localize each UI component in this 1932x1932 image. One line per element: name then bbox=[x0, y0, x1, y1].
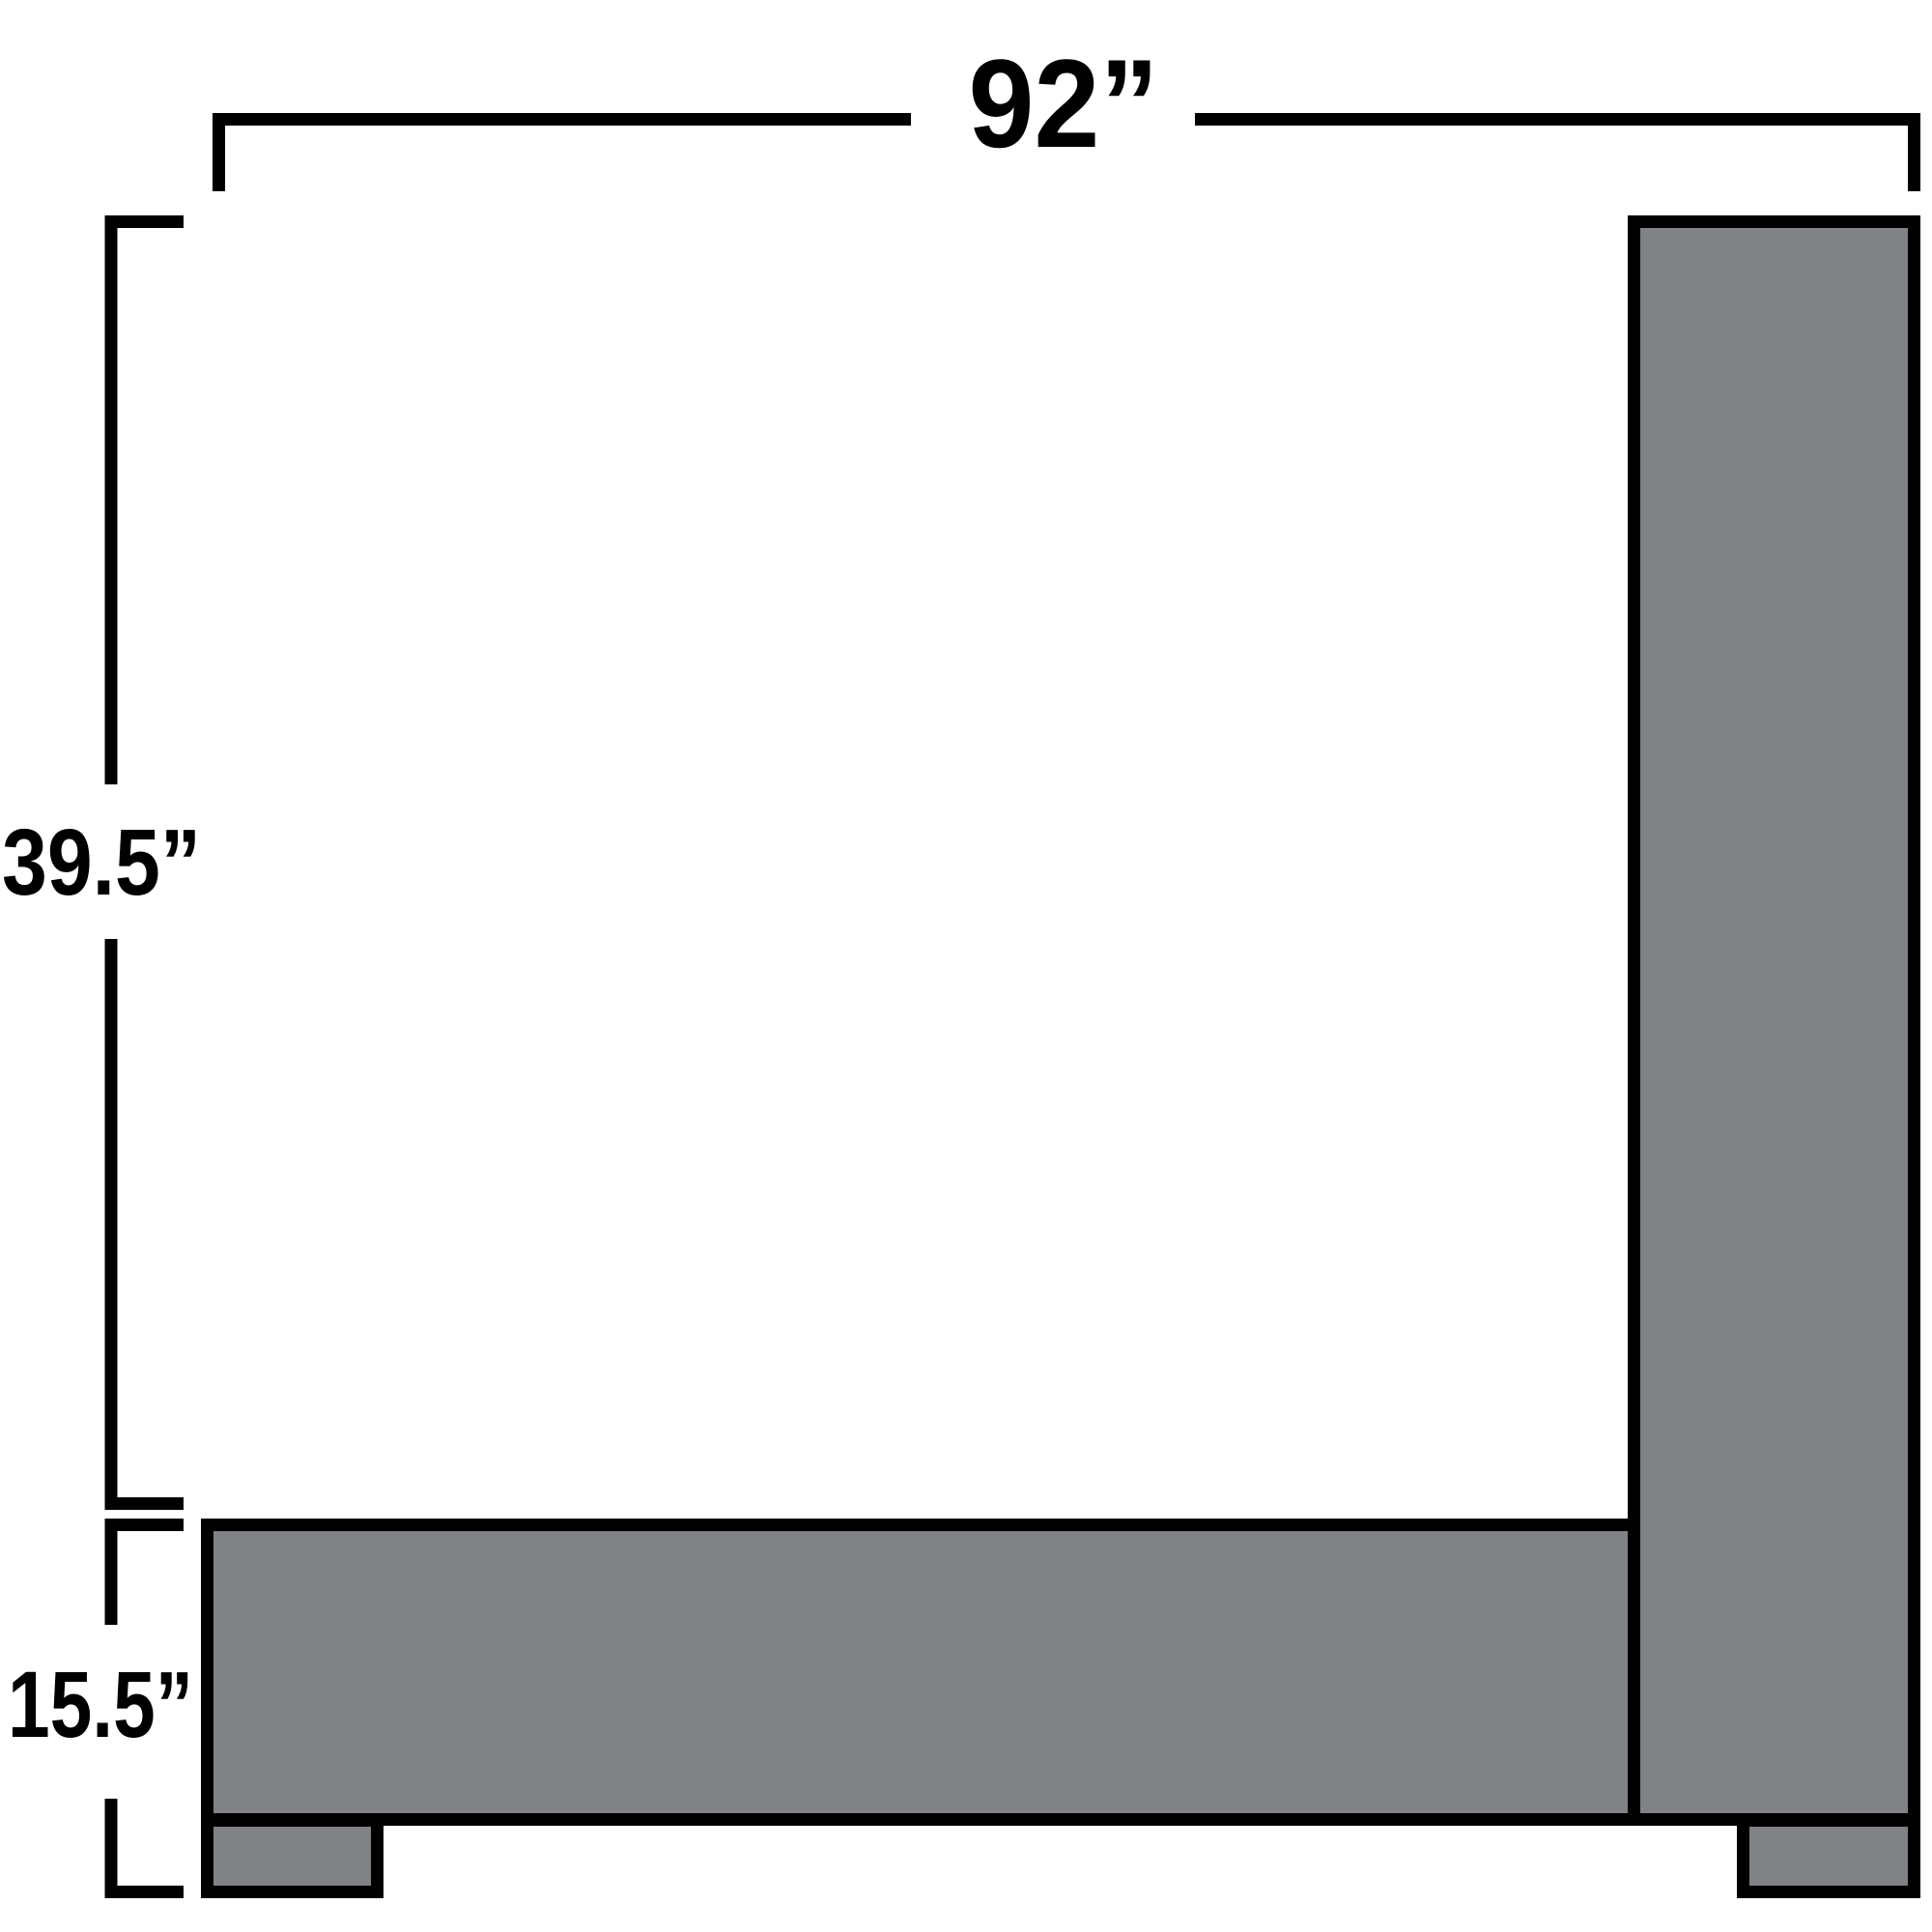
base-height-line-top bbox=[111, 1525, 184, 1626]
left-leg bbox=[208, 1821, 378, 1892]
upper-height-dimension-label: 39.5” bbox=[2, 810, 201, 915]
width-dimension-line-left bbox=[219, 120, 912, 192]
base-height-dimension-label: 15.5” bbox=[8, 1652, 193, 1757]
seat-base bbox=[208, 1525, 1634, 1820]
upper-height-line-bottom bbox=[111, 939, 184, 1504]
upper-height-line-top bbox=[111, 222, 184, 785]
diagram-canvas: 92” 39.5” 15.5” bbox=[0, 0, 1932, 1932]
arm-panel bbox=[1634, 222, 1915, 1820]
right-leg bbox=[1744, 1821, 1915, 1892]
diagram-root: 92” 39.5” 15.5” bbox=[2, 33, 1915, 1892]
upper-height-dimension: 39.5” bbox=[2, 222, 201, 1504]
width-dimension-label: 92” bbox=[969, 33, 1159, 174]
width-dimension-line-right bbox=[1195, 120, 1915, 192]
width-dimension: 92” bbox=[219, 33, 1915, 191]
sofa-silhouette bbox=[208, 222, 1915, 1892]
base-height-dimension: 15.5” bbox=[8, 1525, 193, 1892]
furniture-dimension-diagram: 92” 39.5” 15.5” bbox=[0, 0, 1932, 1932]
base-height-line-bottom bbox=[111, 1799, 184, 1892]
